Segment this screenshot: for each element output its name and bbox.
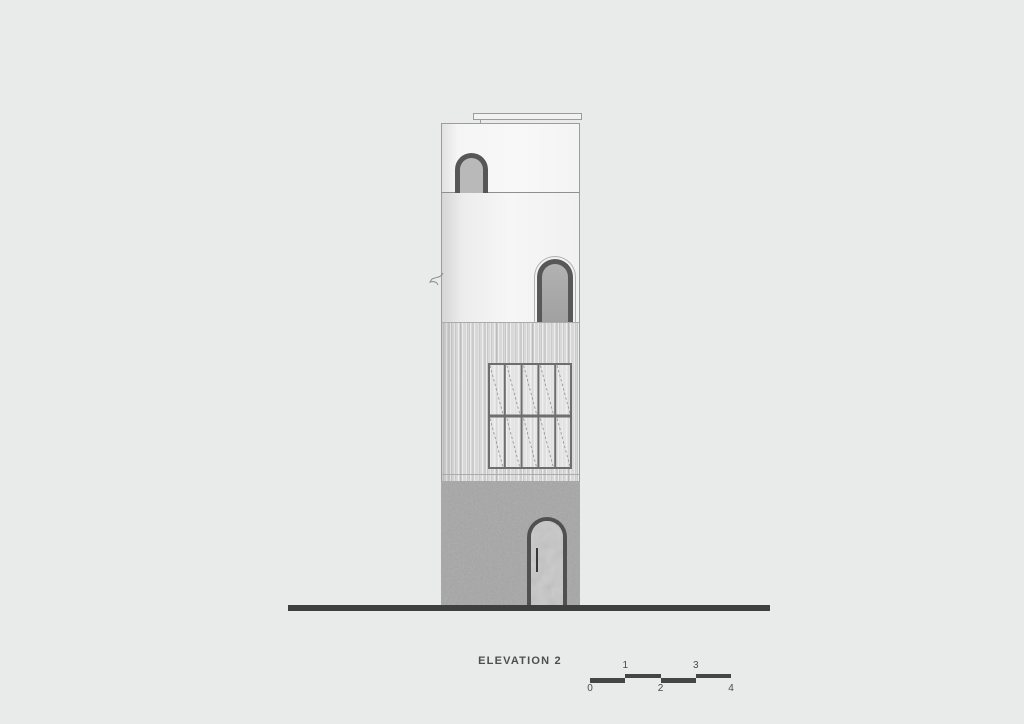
roof-slab	[473, 113, 582, 120]
door-texture	[527, 517, 567, 607]
louver-window-grid	[488, 363, 572, 469]
drawing-canvas: ELEVATION 2 1 3 0 2 4	[0, 0, 1024, 724]
scale-label-4: 4	[728, 683, 734, 694]
scale-bar: 1 3 0 2 4	[590, 660, 731, 698]
scale-label-3: 3	[693, 660, 699, 671]
scale-label-1: 1	[622, 660, 628, 671]
scale-label-2: 2	[658, 683, 664, 694]
drawing-title: ELEVATION 2	[440, 655, 600, 667]
scale-bar-segment	[625, 674, 660, 679]
door-handle	[536, 548, 538, 572]
ground-line	[288, 605, 770, 611]
clad-band-line	[442, 474, 579, 475]
scale-bar-segment	[661, 678, 696, 683]
arched-window-upper	[455, 153, 488, 194]
gutter-hook-detail	[429, 272, 445, 288]
scale-bar-segment	[590, 678, 625, 683]
section-clad-wall	[441, 322, 580, 481]
arched-window-middle-frame	[537, 259, 573, 323]
scale-label-0: 0	[587, 683, 593, 694]
section-parapet	[441, 123, 580, 193]
arched-window-middle	[534, 256, 576, 322]
scale-bar-segment	[696, 674, 731, 679]
section-upper-wall	[441, 193, 580, 322]
arched-entry-door	[527, 517, 567, 607]
